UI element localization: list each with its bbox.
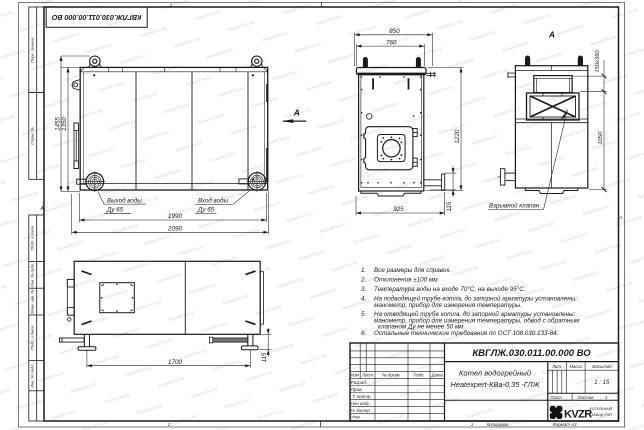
svg-text:Взрывной клапан: Взрывной клапан <box>489 203 540 210</box>
svg-text:850: 850 <box>389 28 400 35</box>
svg-text:1050: 1050 <box>598 131 604 145</box>
svg-text:манометр, прибор для измерения: манометр, прибор для измерения температу… <box>374 301 522 309</box>
svg-text:КВГЛЖ.030.011.00.000 ВО: КВГЛЖ.030.011.00.000 ВО <box>472 348 591 359</box>
svg-text:Взам. инв. №: Взам. инв. № <box>30 289 35 314</box>
svg-text:Подп. и дата: Подп. и дата <box>30 225 35 250</box>
svg-text:150х350: 150х350 <box>595 50 601 73</box>
svg-text:1350: 1350 <box>61 117 68 131</box>
svg-text:Изм: Изм <box>351 373 359 378</box>
svg-text:5.: 5. <box>361 311 366 318</box>
svg-text:Подп.: Подп. <box>413 373 424 378</box>
svg-text:KVZR: KVZR <box>564 409 592 421</box>
svg-text:Н. контр.: Н. контр. <box>351 408 371 413</box>
svg-text:Ду 65: Ду 65 <box>106 207 124 214</box>
svg-text:Дата: Дата <box>431 373 444 378</box>
svg-text:А: А <box>40 206 45 212</box>
svg-text:Лит.: Лит. <box>551 364 562 369</box>
svg-text:Т. контр.: Т. контр. <box>352 394 371 399</box>
svg-text:Температура воды на входе 70°С: Температура воды на входе 70°С, на выход… <box>374 285 526 293</box>
svg-text:Heatexpert-КВа-0,35 -ГЛЖ: Heatexpert-КВа-0,35 -ГЛЖ <box>451 380 541 389</box>
svg-text:Лист: Лист <box>550 395 563 400</box>
svg-text:Перв. примен.: Перв. примен. <box>30 37 35 63</box>
svg-text:Разраб.: Разраб. <box>351 380 367 385</box>
svg-text:925: 925 <box>393 206 404 213</box>
svg-text:Пров.: Пров. <box>351 387 363 392</box>
svg-text:4.: 4. <box>361 296 366 303</box>
svg-text:1220: 1220 <box>454 129 461 143</box>
svg-text:115: 115 <box>447 201 453 211</box>
svg-text:Ду 65: Ду 65 <box>197 207 215 214</box>
svg-text:Котел водогрейный: Котел водогрейный <box>459 368 532 377</box>
svg-text:ЗАВОД РЭП: ЗАВОД РЭП <box>591 413 612 417</box>
svg-text:2090: 2090 <box>167 226 183 233</box>
svg-text:А: А <box>619 215 623 220</box>
svg-text:Отклонения ±100 мм.: Отклонения ±100 мм. <box>374 277 439 284</box>
svg-text:Инв. № дубл.: Инв. № дубл. <box>30 263 35 287</box>
svg-text:1.: 1. <box>361 267 366 274</box>
svg-text:Инв. № подл.: Инв. № подл. <box>30 364 35 388</box>
svg-text:1700: 1700 <box>168 359 183 366</box>
svg-text:Подп. и дата: Подп. и дата <box>30 325 35 350</box>
svg-text:№ докум.: № докум. <box>382 373 400 378</box>
svg-text:Листов: Листов <box>577 395 595 400</box>
svg-text:Масштаб: Масштаб <box>592 364 612 369</box>
svg-text:760: 760 <box>386 39 397 46</box>
svg-text:Справ. №: Справ. № <box>30 126 35 144</box>
svg-text:1: 1 <box>471 422 473 427</box>
svg-text:Выход воды: Выход воды <box>107 197 142 204</box>
svg-text:1990: 1990 <box>168 213 183 220</box>
svg-text:1 : 15: 1 : 15 <box>594 380 610 386</box>
svg-text:Вход воды: Вход воды <box>198 198 228 205</box>
svg-text:Копировал: Копировал <box>487 422 509 427</box>
svg-text:Формат А3: Формат А3 <box>552 422 577 427</box>
svg-text:115: 115 <box>262 352 268 362</box>
svg-text:Остальные технические требован: Остальные технические требования по ОСТ … <box>374 329 558 337</box>
svg-text:6.: 6. <box>361 330 366 337</box>
svg-text:КОТЕЛЬНЫЙ: КОТЕЛЬНЫЙ <box>590 407 613 411</box>
svg-text:2.: 2. <box>360 277 366 284</box>
svg-text:А: А <box>293 108 300 118</box>
svg-text:Лист: Лист <box>361 373 373 378</box>
svg-text:Масса: Масса <box>570 364 583 369</box>
svg-text:Утв.: Утв. <box>351 415 361 420</box>
svg-text:Нач.отд.: Нач.отд. <box>351 401 370 406</box>
svg-text:Все размеры для справок.: Все размеры для справок. <box>374 266 451 274</box>
svg-text:КВГЛЖ.030.011.00.000 ВО: КВГЛЖ.030.011.00.000 ВО <box>52 13 142 22</box>
svg-text:А: А <box>548 30 555 40</box>
svg-text:3.: 3. <box>361 286 366 293</box>
